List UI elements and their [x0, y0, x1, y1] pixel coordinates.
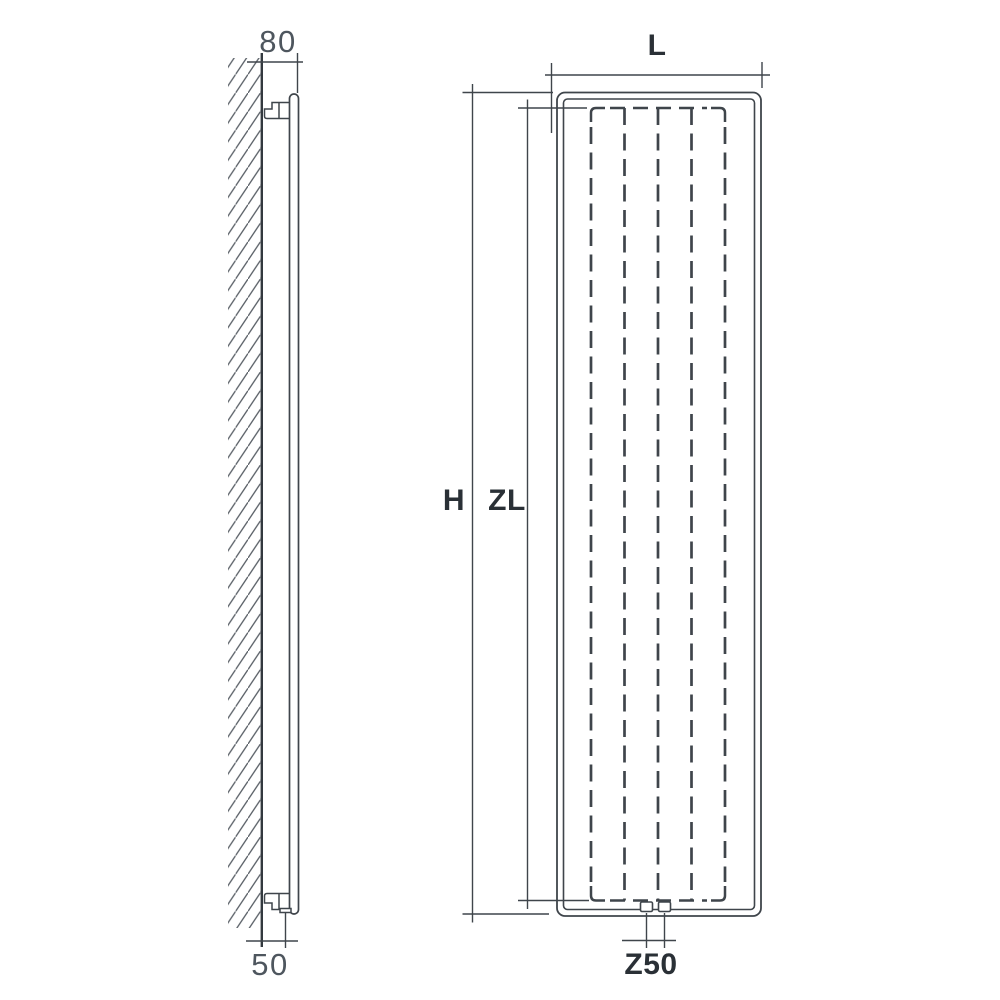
wall-hatching [228, 58, 262, 928]
top-collector-hook-right [711, 108, 725, 122]
drawing-canvas: 80 50 [0, 0, 1000, 1000]
bracket-foot [280, 909, 291, 913]
dim-L-label: L [648, 29, 667, 62]
dim-Z50-label: Z50 [624, 948, 677, 981]
technical-drawing-svg: 80 50 [0, 0, 1000, 1000]
connection-port-left [641, 902, 653, 912]
bracket-bottom-outline [265, 894, 291, 910]
dim-ZL [518, 100, 589, 910]
bracket-top-outline [265, 103, 291, 119]
water-channels [591, 108, 725, 901]
top-collector-hook-left [591, 108, 605, 122]
side-view: 80 50 [228, 24, 303, 982]
dim-50-label: 50 [251, 947, 288, 982]
dim-80-label: 80 [259, 24, 296, 59]
front-view: L H ZL Z50 [443, 29, 770, 981]
bottom-collector-hook-right [711, 886, 725, 901]
radiator-panel-side [290, 94, 299, 914]
wall-bracket-bottom [265, 894, 292, 913]
bottom-collector-hook-left [591, 886, 605, 901]
connection-port-right [659, 902, 671, 912]
dim-H-label: H [443, 484, 465, 517]
dim-Z50 [622, 913, 676, 948]
dim-ZL-label: ZL [488, 484, 526, 517]
wall-bracket-top [265, 103, 291, 119]
